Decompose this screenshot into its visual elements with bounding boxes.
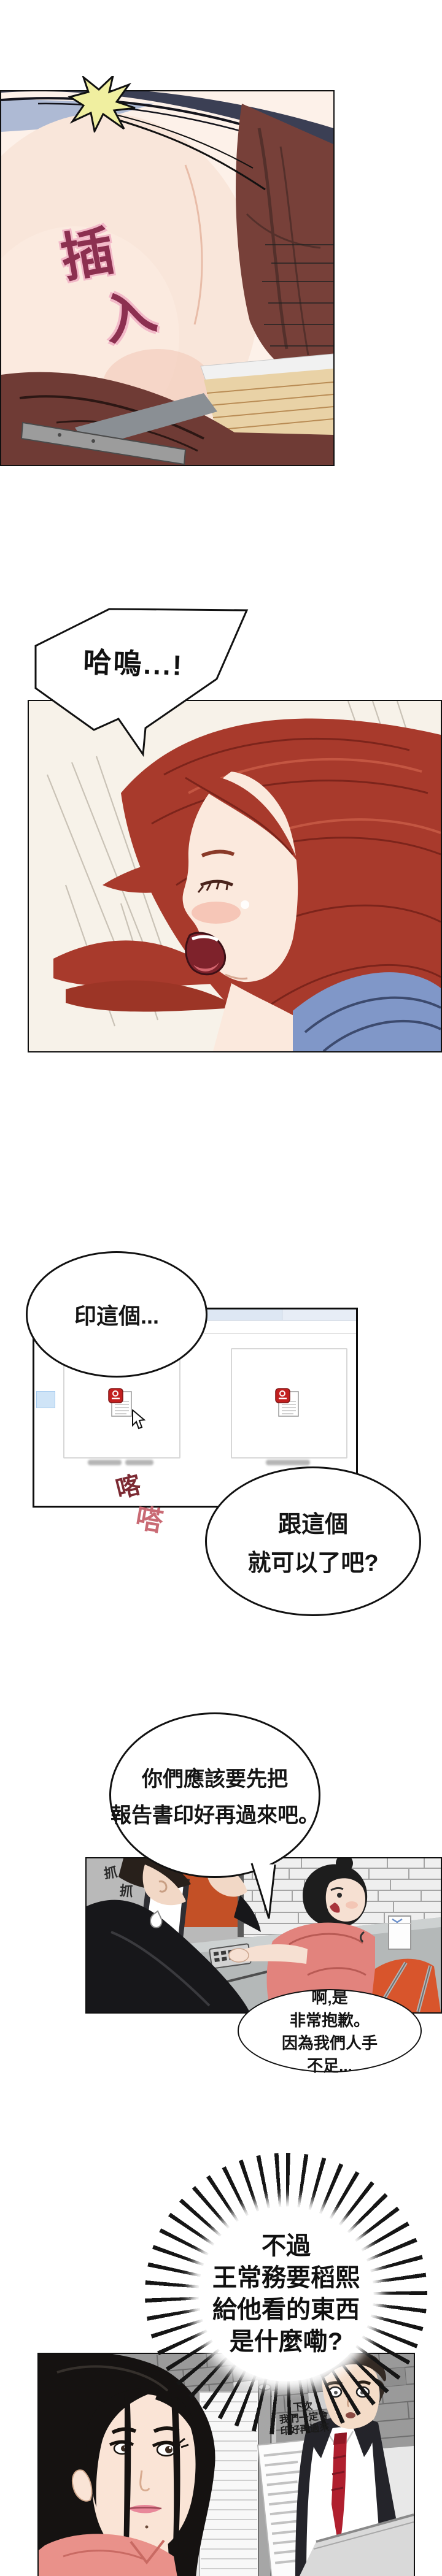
speech-bubble-print-this: 印這個... [26,1251,207,1378]
file-name-blurred [88,1460,122,1465]
sfx-typing-char2: 嗒 [133,1496,166,1539]
sfx-scratch-char2: 抓 [118,1880,134,1901]
handwritten-note: 下次 我們一定會 印好再過來 [278,2400,330,2438]
speech-bubble-with-this-line2: 就可以了吧? [247,1544,378,1577]
file-name-blurred [266,1460,310,1465]
hwp-document-icon [275,1388,303,1419]
speech-bubble-sorry: 啊,是 非常抱歉。 因為我們人手 不足... [238,1989,422,2072]
file-preview-card [231,1348,347,1459]
window-tab-2 [204,1309,282,1320]
speech-bubble-sorry-line2: 非常抱歉。 [290,2008,370,2031]
speech-bubble-sorry-line4: 不足... [307,2053,352,2076]
burst-line1: 不過 [262,2232,311,2260]
speech-bubble-with-this-line1: 跟這個 [278,1505,348,1539]
panel1-art [1,91,333,465]
burst-line2: 王常務要稻熙 [212,2264,360,2292]
speech-bubble-sorry-line3: 因為我們人手 [282,2031,378,2053]
speech-bubble-sorry-line1: 啊,是 [311,1985,347,2008]
burst-thought-text: 不過 王常務要稻熙 給他看的東西 是什麼嘞? [145,2153,427,2435]
burst-line4: 是什麼嘞? [230,2328,343,2356]
cursor-icon [131,1409,146,1430]
burst-line3: 給他看的東西 [212,2296,360,2324]
selection-highlight [36,1391,55,1408]
speech-bubble-should-print: 你們應該要先把 報告書印好再過來吧。 [109,1712,320,1878]
impact-starburst-icon [65,76,136,132]
speech-bubble-should-print-tail [244,1862,282,1921]
speech-bubble-print-this-text: 印這個... [74,1298,159,1330]
speech-bubble-should-print-line1: 你們應該要先把 [142,1762,288,1792]
speech-bubble-gasp-text: 哈嗚...! [61,639,206,684]
window-tab-3 [282,1309,356,1320]
speech-bubble-should-print-line2: 報告書印好再過來吧。 [110,1798,319,1828]
comic-page: 插 入 哈嗚...! [0,0,442,2576]
file-name-blurred [125,1460,153,1465]
speech-bubble-with-this: 跟這個 就可以了吧? [205,1466,421,1616]
sfx-scratch-char1: 抓 [103,1861,118,1883]
panel-closeup-scene: 插 入 [0,90,335,466]
burst-thought: 不過 王常務要稻熙 給他看的東西 是什麼嘞? [145,2153,427,2435]
